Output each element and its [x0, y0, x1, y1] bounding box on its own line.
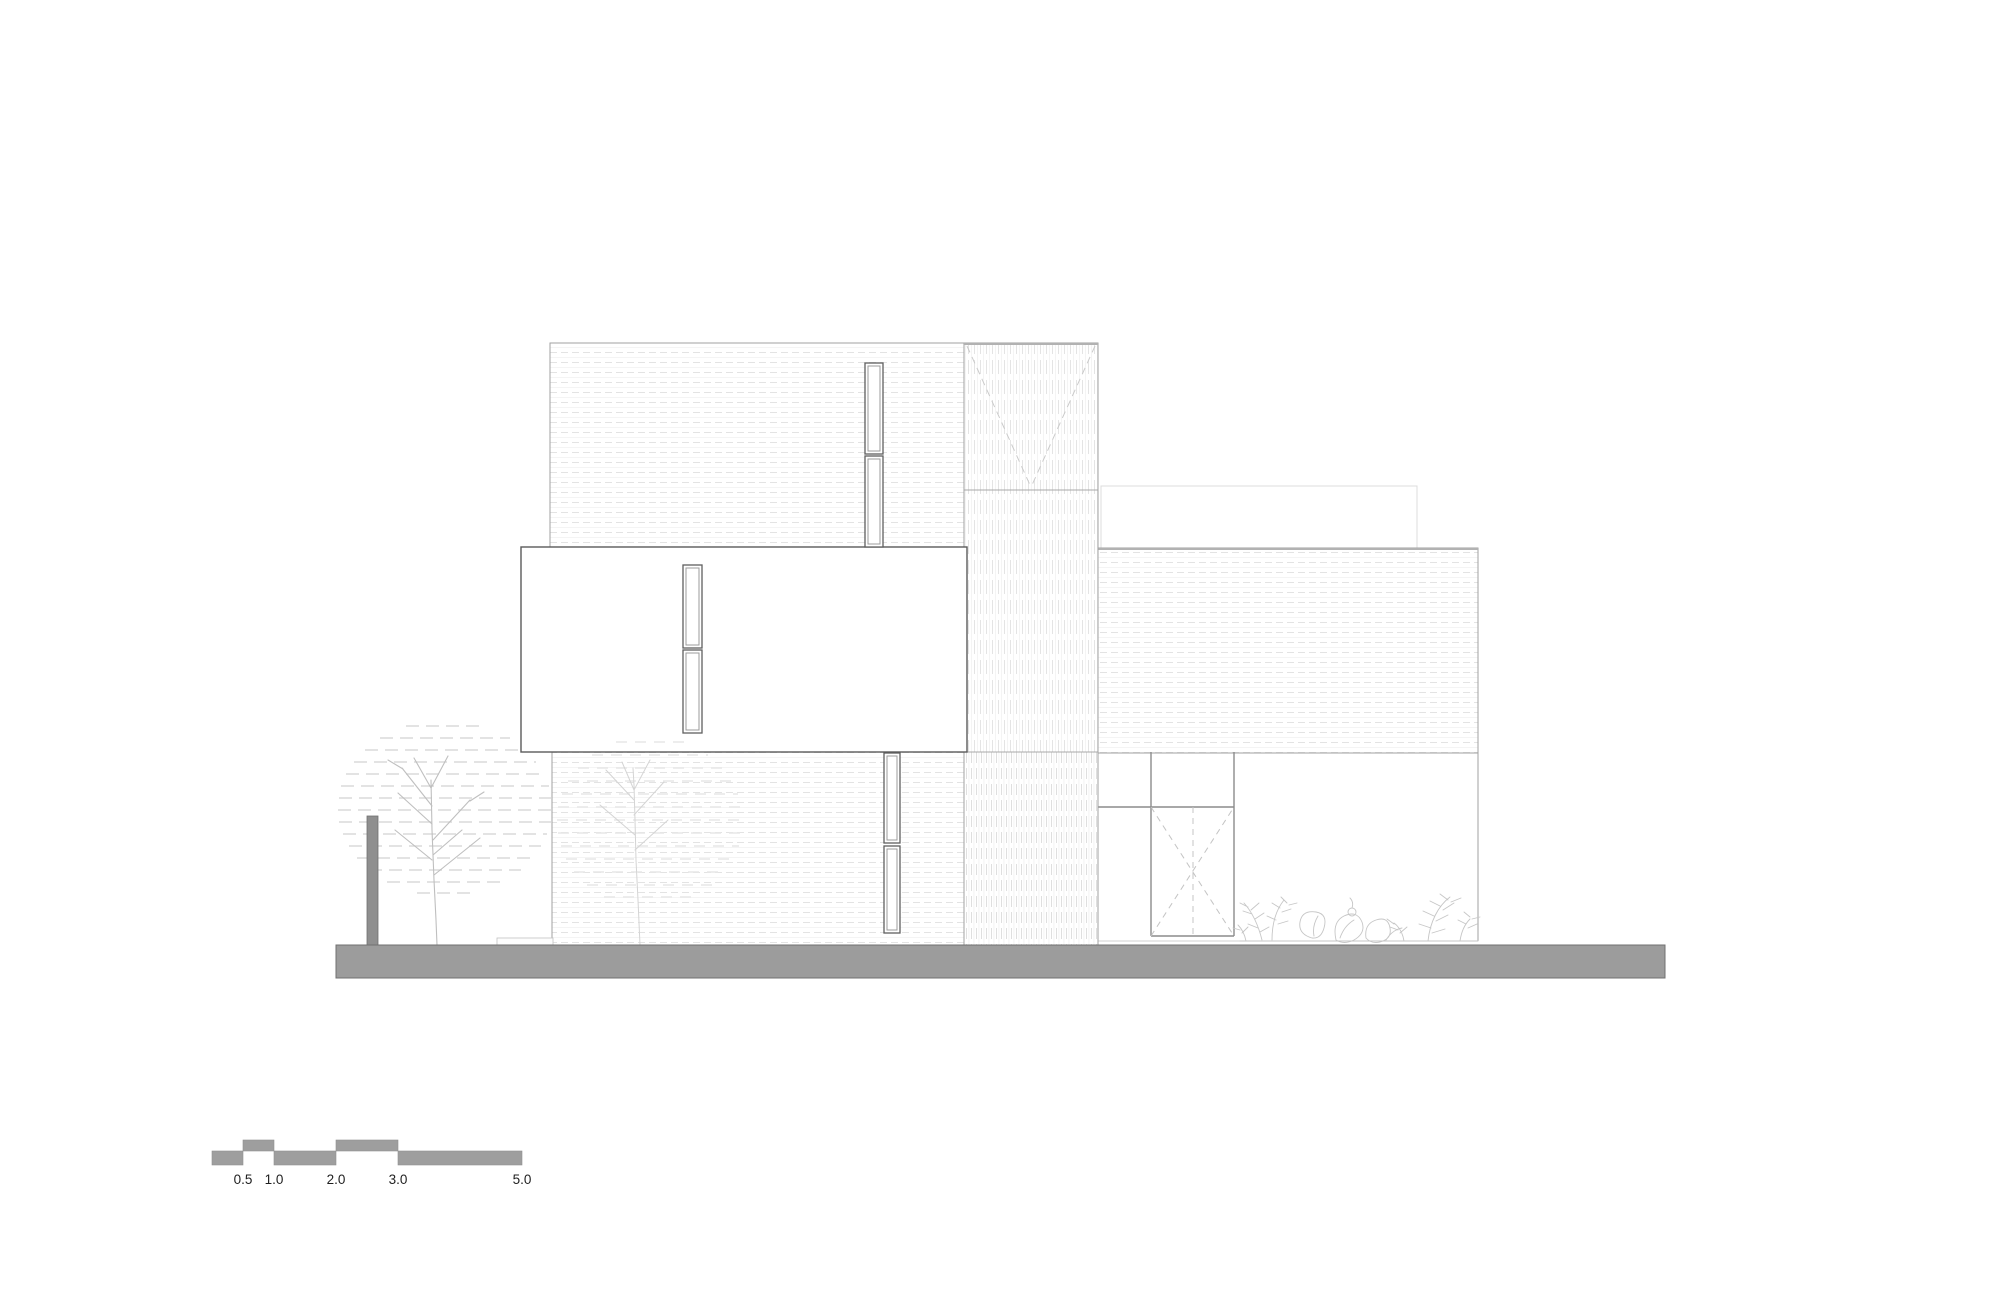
door-swing-marking	[1151, 807, 1234, 936]
right-ground-floor	[1098, 752, 1478, 941]
scale-bar: 0.5 1.0 2.0 3.0 5.0	[212, 1140, 531, 1187]
scale-label-30: 3.0	[389, 1172, 408, 1187]
scale-segment-0-05	[212, 1151, 243, 1165]
elevation-drawing: 0.5 1.0 2.0 3.0 5.0	[0, 0, 2000, 1294]
light-pole	[367, 816, 378, 945]
scale-label-05: 0.5	[234, 1172, 253, 1187]
cantilevered-white-box	[521, 547, 967, 752]
scale-segment-05-10	[243, 1140, 274, 1151]
roof-parapet-outline	[1101, 486, 1417, 548]
large-tree-trunk	[388, 756, 484, 945]
scale-label-10: 1.0	[265, 1172, 284, 1187]
central-tower	[964, 343, 1098, 945]
upper-left-block	[550, 343, 964, 548]
right-block	[1098, 548, 1478, 753]
scale-segment-10-20	[274, 1151, 336, 1165]
tower-lower-hatch	[964, 752, 1098, 945]
scale-label-50: 5.0	[513, 1172, 532, 1187]
shrub-fern-right	[1387, 894, 1480, 941]
shrub-fern-left	[1233, 897, 1297, 941]
elevation-sheet: 0.5 1.0 2.0 3.0 5.0	[0, 0, 2000, 1294]
plinth-step	[497, 938, 553, 945]
scale-segment-30-50	[398, 1151, 522, 1165]
scale-segment-20-30	[336, 1140, 398, 1151]
building	[521, 343, 1478, 945]
scale-label-20: 2.0	[327, 1172, 346, 1187]
ground-slab	[336, 945, 1665, 978]
shrub-broadleaf-middle	[1300, 898, 1402, 943]
tower-upper-hatch	[964, 343, 1098, 752]
shrub-planting	[1233, 894, 1480, 943]
window-lower-block	[884, 753, 900, 933]
